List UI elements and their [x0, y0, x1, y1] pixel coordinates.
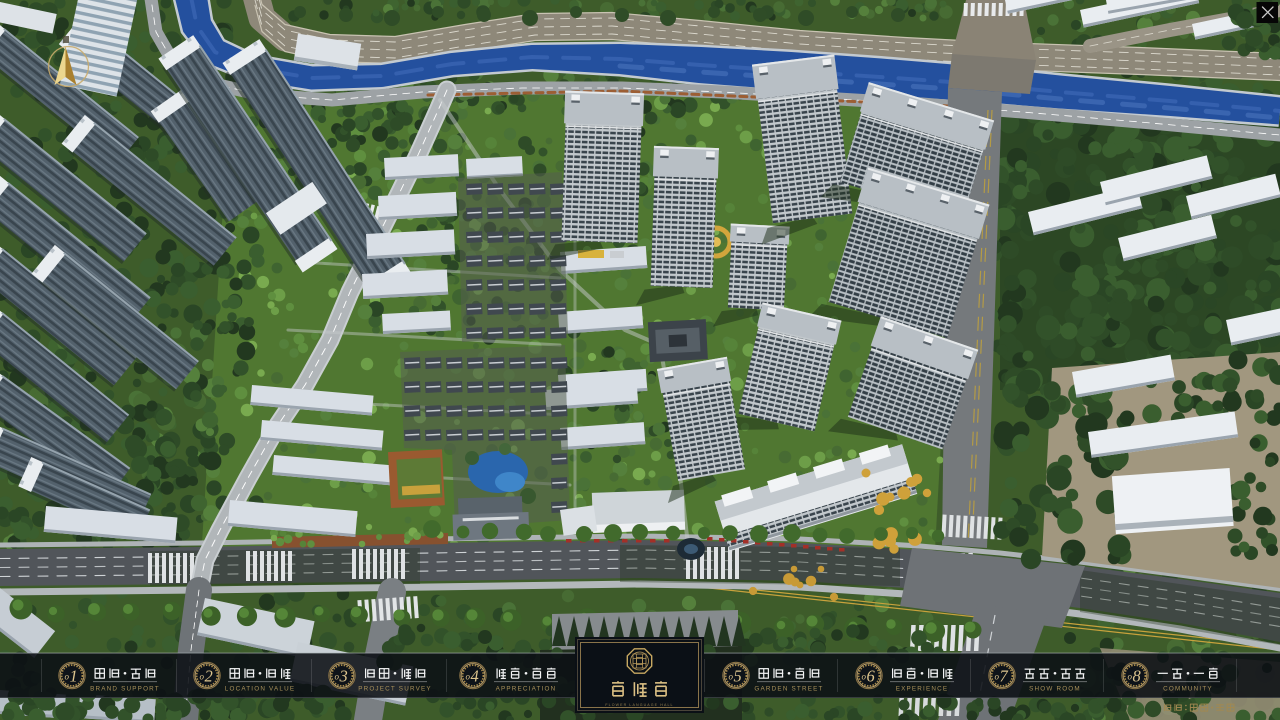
- svg-text:PROJECT SURVEY: PROJECT SURVEY: [358, 686, 432, 693]
- svg-text:SHOW ROOM: SHOW ROOM: [1029, 686, 1081, 693]
- svg-text:COMMUNITY: COMMUNITY: [1163, 686, 1213, 693]
- svg-text:1: 1: [70, 666, 78, 685]
- svg-text:LOCATION VALUE: LOCATION VALUE: [225, 686, 295, 693]
- svg-text:BRAND SUPPORT: BRAND SUPPORT: [90, 686, 160, 693]
- svg-text:FLOWER LANGUAGE HALL: FLOWER LANGUAGE HALL: [605, 703, 673, 707]
- svg-text:4: 4: [471, 666, 479, 685]
- svg-text:2: 2: [205, 666, 213, 685]
- svg-text:APPRECIATION: APPRECIATION: [496, 686, 557, 693]
- svg-text:GARDEN STREET: GARDEN STREET: [754, 686, 823, 693]
- svg-text:3: 3: [339, 666, 348, 685]
- svg-text:7: 7: [1000, 666, 1009, 685]
- svg-text:5: 5: [734, 666, 742, 685]
- svg-text:6: 6: [867, 666, 876, 685]
- svg-text:EXPERIENCE: EXPERIENCE: [896, 686, 949, 693]
- svg-text:8: 8: [1133, 666, 1142, 685]
